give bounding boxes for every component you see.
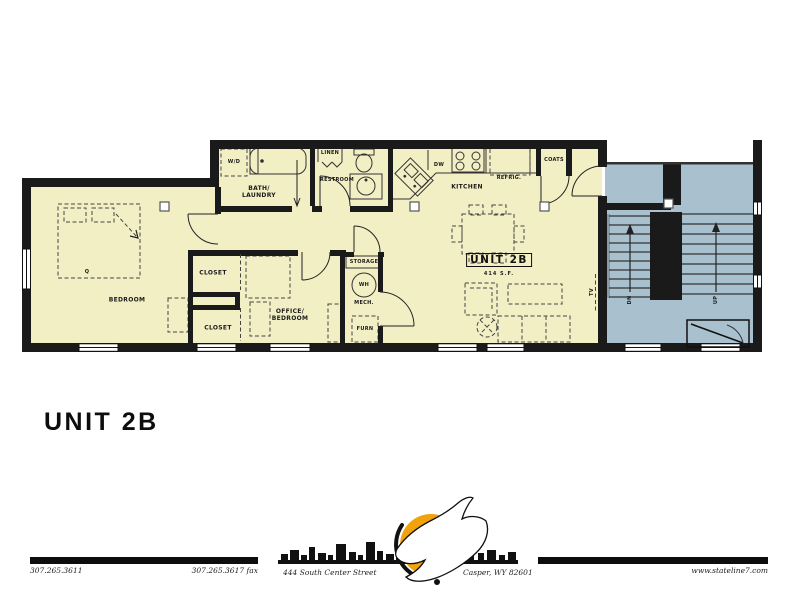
logo-arc-dot <box>434 579 440 585</box>
logo-bird <box>396 497 488 581</box>
plan-drawing <box>0 0 800 600</box>
logo <box>278 497 518 585</box>
floor-plan-sheet: BEDROOM CLOSET CLOSET OFFICE/ BEDROOM BA… <box>0 0 800 600</box>
stair-top-line <box>605 162 755 165</box>
